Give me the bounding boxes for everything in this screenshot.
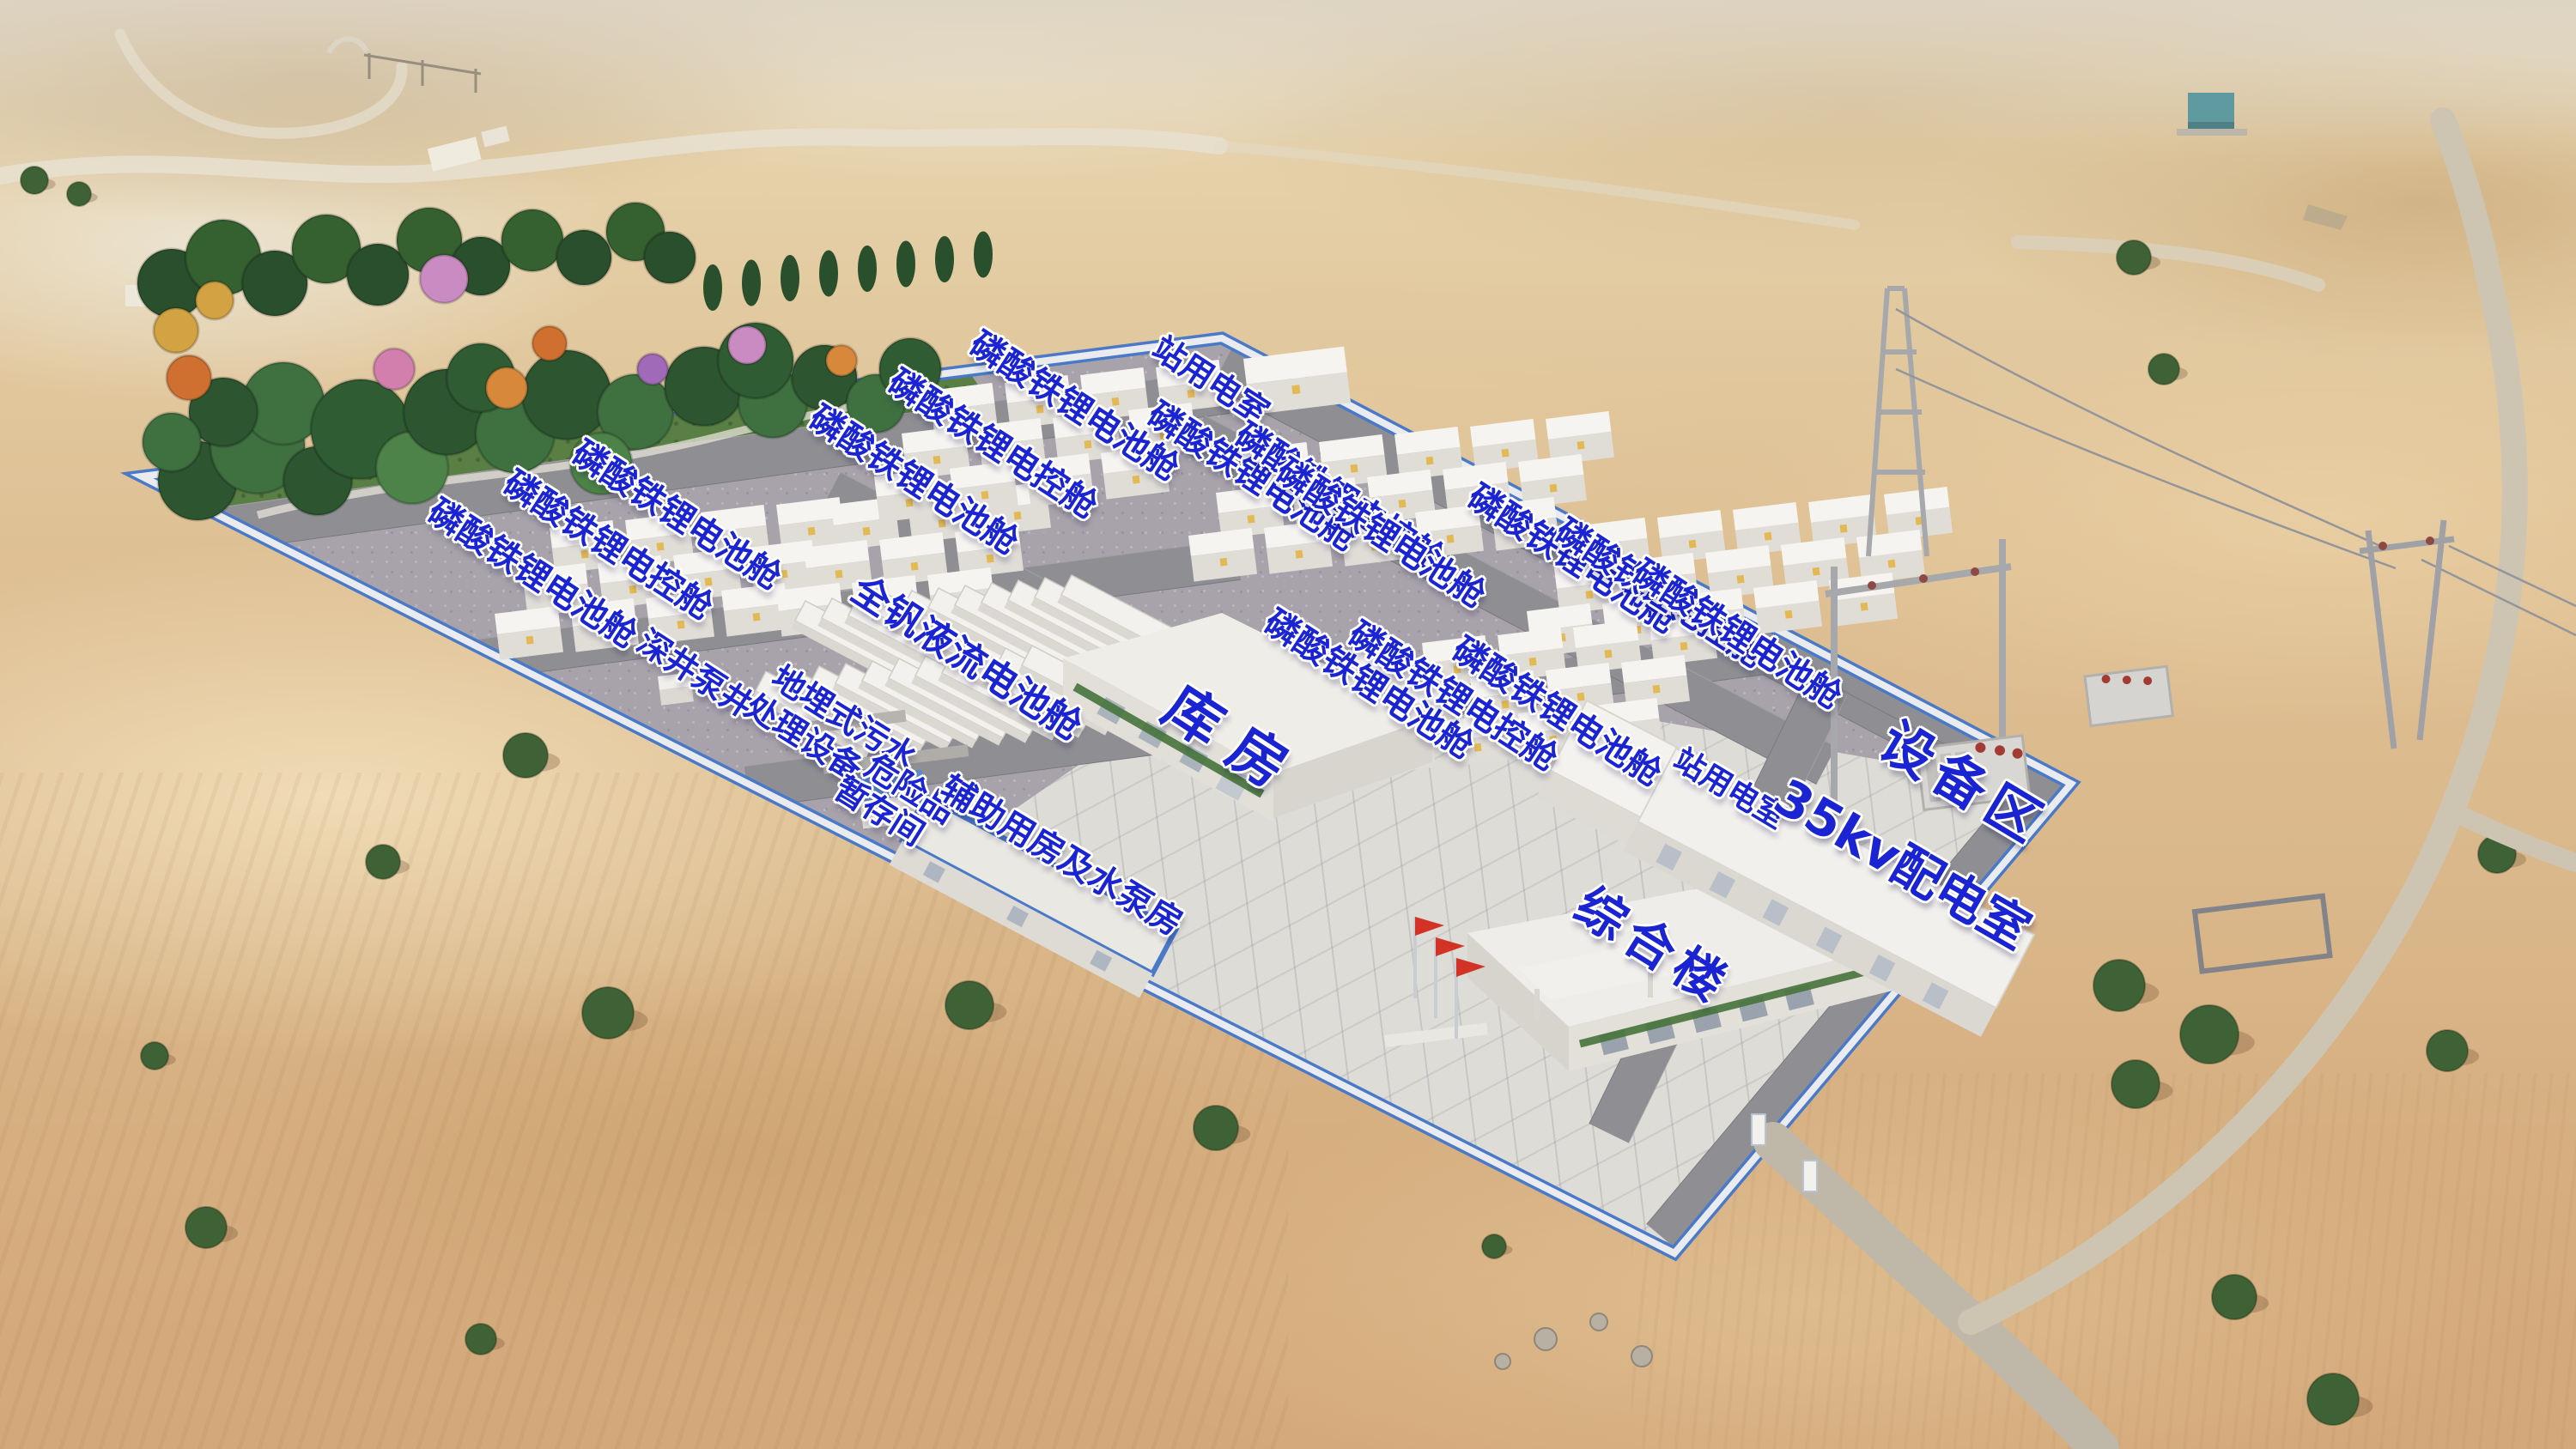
tree xyxy=(374,349,415,390)
tree xyxy=(556,230,611,285)
tree xyxy=(570,433,632,494)
battery-container xyxy=(495,606,563,660)
poplar-tree xyxy=(781,255,799,301)
battery-container xyxy=(950,461,1018,515)
tree xyxy=(522,350,611,440)
tree xyxy=(167,355,211,400)
poplar-tree xyxy=(858,246,877,292)
tree xyxy=(728,326,766,364)
auxiliary-building xyxy=(890,797,1176,997)
tree xyxy=(637,354,668,385)
access-road xyxy=(1752,120,2576,1449)
deep-well-pump xyxy=(658,672,694,705)
battery-container xyxy=(1340,512,1408,567)
battery-container xyxy=(1415,505,1484,559)
poplar-tree xyxy=(935,236,954,282)
tree xyxy=(154,308,198,353)
battery-container xyxy=(1188,528,1257,582)
site-structures xyxy=(0,0,2576,1449)
battery-container xyxy=(646,591,714,645)
tree xyxy=(879,338,941,400)
battery-container xyxy=(1101,446,1170,500)
poplar-tree xyxy=(974,232,993,278)
tree xyxy=(143,413,201,471)
poplar-tree xyxy=(896,241,915,288)
battery-container xyxy=(1753,580,1822,634)
battery-container xyxy=(570,598,639,652)
battery-container xyxy=(1443,713,1511,767)
poplar-tree xyxy=(819,251,838,297)
tree xyxy=(532,326,567,361)
battery-container xyxy=(1025,453,1094,507)
substation-equipment xyxy=(1826,288,2576,971)
aerial-site-rendering: 站用电室磷酸铁锂电池舱磷酸铁锂电控舱磷酸铁锂电池舱磷酸铁锂电池舱磷酸铁锂电控舱磷… xyxy=(0,0,2576,1449)
tree xyxy=(196,282,234,319)
battery-container xyxy=(1491,497,1559,551)
poplar-tree xyxy=(703,264,722,311)
garden-trees xyxy=(137,203,993,520)
tree xyxy=(826,345,857,376)
battery-container xyxy=(874,469,943,523)
warehouse-building xyxy=(1063,613,1432,822)
tree xyxy=(501,209,563,271)
battery-container xyxy=(1264,520,1333,574)
tree xyxy=(486,367,527,409)
poplar-tree xyxy=(742,260,761,306)
tree xyxy=(644,232,696,283)
battery-container xyxy=(1829,573,1898,627)
tree xyxy=(420,255,468,303)
